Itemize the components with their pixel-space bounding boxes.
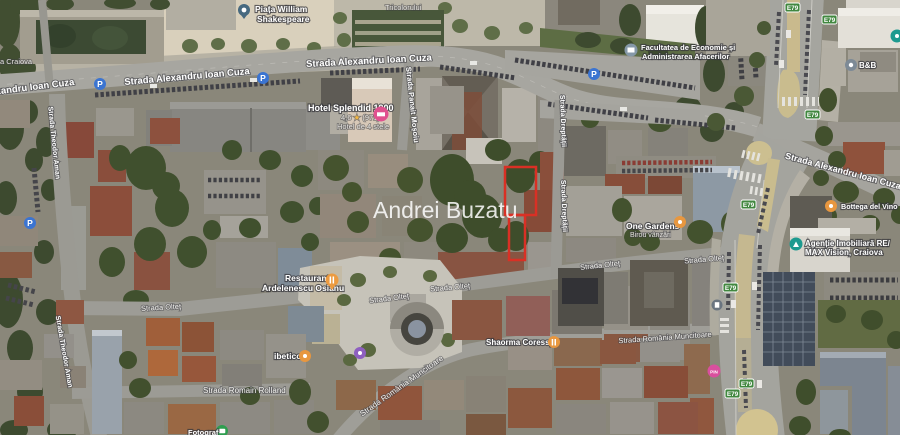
svg-text:E79: E79 [741, 381, 753, 388]
svg-text:Strada Romain Rolland: Strada Romain Rolland [203, 386, 286, 395]
svg-text:E79: E79 [743, 202, 755, 209]
svg-text:P: P [97, 79, 103, 89]
svg-text:E79: E79 [807, 112, 819, 119]
svg-text:Restaurant: Restaurant [285, 273, 330, 283]
svg-text:B&B: B&B [859, 61, 877, 70]
svg-text:E79: E79 [727, 391, 739, 398]
svg-text:Bottega del Vino: Bottega del Vino [841, 202, 898, 211]
svg-text:Birou vânzări: Birou vânzări [630, 232, 671, 239]
svg-text:Facultatea de Economie și: Facultatea de Economie și [641, 43, 735, 52]
svg-text:MAX Vision, Craiova: MAX Vision, Craiova [805, 248, 883, 257]
svg-text:E79: E79 [787, 5, 799, 12]
svg-text:Piața William: Piața William [255, 4, 308, 14]
svg-text:a Craiova: a Craiova [0, 57, 33, 66]
svg-text:P: P [260, 73, 266, 83]
svg-text:Tricolorului: Tricolorului [385, 3, 422, 12]
svg-text:Shaorma Coressy: Shaorma Coressy [486, 338, 555, 347]
svg-text:Fotograf: Fotograf [188, 428, 219, 435]
svg-text:Administrarea Afacerilor: Administrarea Afacerilor [642, 52, 729, 61]
svg-text:ibetico: ibetico [274, 351, 301, 361]
svg-text:Hotel de 4 stele: Hotel de 4 stele [337, 122, 389, 131]
svg-text:One Gardens: One Gardens [626, 221, 680, 231]
svg-text:Shakespeare: Shakespeare [257, 14, 310, 24]
svg-text:E79: E79 [725, 285, 737, 292]
svg-text:Andrei Buzatu: Andrei Buzatu [373, 197, 517, 223]
svg-text:PIN: PIN [710, 370, 718, 375]
svg-text:P: P [591, 69, 597, 79]
svg-text:Agenție Imobiliară RE/: Agenție Imobiliară RE/ [805, 239, 891, 248]
svg-text:P: P [27, 218, 33, 228]
svg-text:E79: E79 [824, 17, 836, 24]
